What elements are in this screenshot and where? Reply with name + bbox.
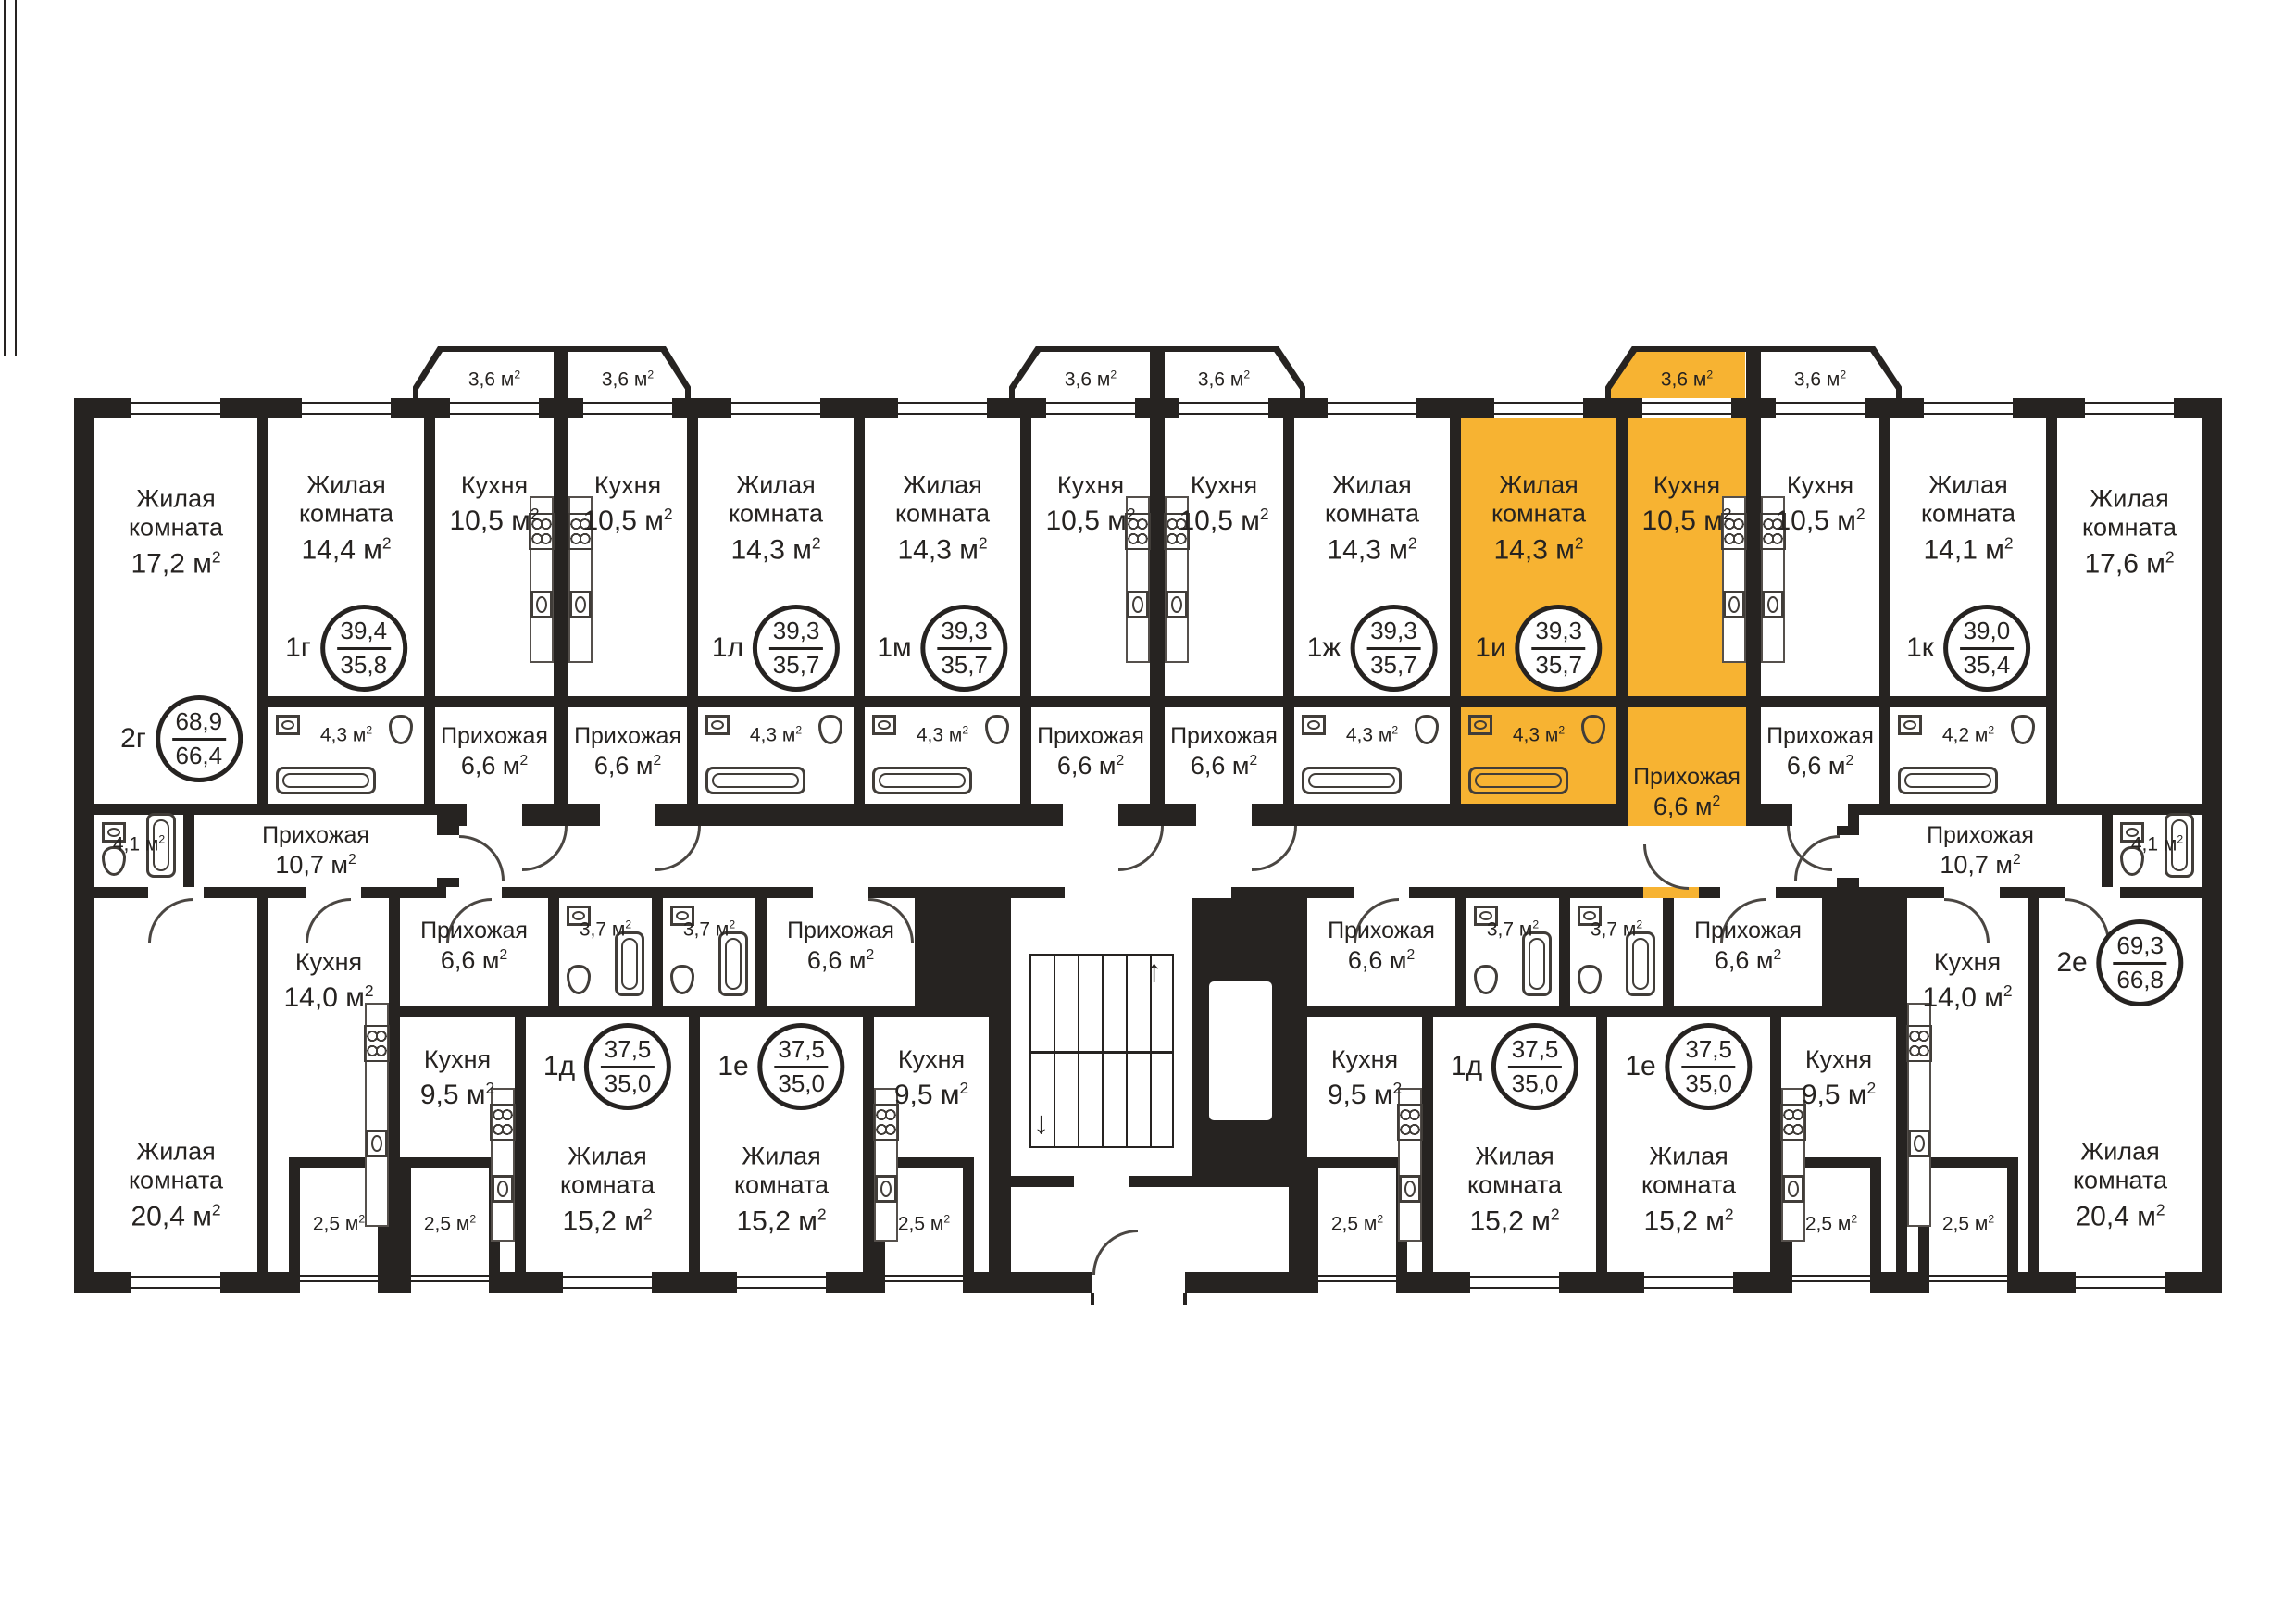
area-fraction-circle: 37,535,0 bbox=[1491, 1023, 1578, 1110]
sink-icon bbox=[102, 822, 126, 843]
total-area: 39,3 bbox=[773, 618, 820, 643]
sink-icon bbox=[276, 715, 300, 735]
r-pr-1g[interactable] bbox=[435, 707, 554, 804]
bathtub-icon bbox=[872, 767, 972, 794]
elevator-car bbox=[1209, 981, 1272, 1120]
area-fraction-circle: 39,335,7 bbox=[753, 605, 840, 692]
sink-icon bbox=[1302, 715, 1326, 735]
living-area: 35,7 bbox=[1535, 653, 1582, 678]
bal-b4[interactable] bbox=[1318, 1168, 1396, 1272]
total-area: 39,4 bbox=[341, 618, 388, 643]
apartment-badge-1г[interactable]: 1г39,435,8 bbox=[285, 605, 407, 692]
bathtub-icon bbox=[276, 767, 376, 794]
total-area: 37,5 bbox=[1512, 1037, 1559, 1062]
window bbox=[0, 89, 20, 178]
fraction-divider bbox=[1682, 1066, 1736, 1068]
door-opening bbox=[1720, 887, 1776, 898]
window bbox=[131, 1272, 220, 1293]
door-opening bbox=[1944, 887, 2000, 898]
window bbox=[1924, 398, 2013, 418]
door-opening bbox=[437, 835, 459, 878]
door-opening bbox=[1837, 835, 1859, 878]
apartment-badge-2г[interactable]: 2г68,966,4 bbox=[120, 695, 243, 782]
apartment-badge-1м[interactable]: 1м39,335,7 bbox=[877, 605, 1007, 692]
stove-icon bbox=[1760, 513, 1786, 550]
stairs-arrow-down: ↓ bbox=[1033, 1107, 1049, 1139]
apartment-badge-1е[interactable]: 1е37,535,0 bbox=[1625, 1023, 1752, 1110]
area-fraction-circle: 37,535,0 bbox=[584, 1023, 671, 1110]
r-pr-2g[interactable] bbox=[194, 815, 437, 887]
living-area: 35,0 bbox=[778, 1071, 825, 1096]
balcony-rail bbox=[1318, 1272, 1396, 1293]
fraction-divider bbox=[1960, 647, 2014, 650]
living-area: 35,0 bbox=[605, 1071, 652, 1096]
bathtub-icon bbox=[705, 767, 805, 794]
balcony-rail bbox=[411, 1272, 489, 1293]
balcony-rail bbox=[300, 1272, 378, 1293]
area-fraction-circle: 39,035,4 bbox=[1943, 605, 2030, 692]
kitchen-sink-icon bbox=[492, 1175, 514, 1203]
window bbox=[1328, 398, 1416, 418]
bathtub-icon bbox=[1468, 767, 1568, 794]
door-opening bbox=[467, 804, 522, 826]
fixtures-layer: ↑↓ bbox=[0, 0, 2296, 356]
living-area: 66,4 bbox=[176, 743, 223, 768]
living-area: 35,7 bbox=[773, 653, 820, 678]
bathtub-icon bbox=[615, 931, 644, 996]
area-fraction-circle: 39,335,7 bbox=[1516, 605, 1603, 692]
apartment-id: 1м bbox=[877, 632, 911, 664]
door-opening bbox=[2065, 887, 2120, 898]
sink-icon bbox=[1578, 906, 1602, 926]
apartment-badge-1ж[interactable]: 1ж39,335,7 bbox=[1307, 605, 1438, 692]
area-fraction-circle: 37,535,0 bbox=[1666, 1023, 1753, 1110]
area-fraction-circle: 39,335,7 bbox=[921, 605, 1008, 692]
apartment-badge-1к[interactable]: 1к39,035,4 bbox=[1906, 605, 2030, 692]
kitchen-sink-icon bbox=[1908, 1130, 1930, 1157]
door-opening bbox=[1074, 1176, 1129, 1187]
apartment-badge-2е[interactable]: 2е69,366,8 bbox=[2056, 919, 2183, 1006]
kitchen-sink-icon bbox=[530, 591, 553, 618]
apartment-id: 1е bbox=[717, 1051, 748, 1082]
bathtub-icon bbox=[1626, 931, 1655, 996]
sink-icon bbox=[2120, 822, 2144, 843]
total-area: 68,9 bbox=[176, 709, 223, 734]
kitchen-sink-icon bbox=[1166, 591, 1188, 618]
door-opening bbox=[446, 887, 502, 898]
total-area: 37,5 bbox=[778, 1037, 825, 1062]
total-area: 37,5 bbox=[605, 1037, 652, 1062]
stairs-arrow-up: ↑ bbox=[1146, 956, 1162, 987]
window bbox=[1494, 398, 1583, 418]
kitchen-sink-icon bbox=[366, 1130, 388, 1157]
door-opening bbox=[813, 887, 868, 898]
door-opening bbox=[306, 887, 361, 898]
window bbox=[1179, 398, 1268, 418]
bal-b2[interactable] bbox=[411, 1168, 489, 1272]
kitchen-sink-icon bbox=[569, 591, 592, 618]
total-area: 39,0 bbox=[1964, 618, 2011, 643]
window bbox=[1046, 398, 1135, 418]
apartment-badge-1л[interactable]: 1л39,335,7 bbox=[712, 605, 840, 692]
door-opening bbox=[1063, 804, 1118, 826]
apartment-id: 1л bbox=[712, 632, 743, 664]
entrance-porch-line bbox=[1091, 1293, 1094, 1305]
bathtub-icon bbox=[1302, 767, 1402, 794]
apartment-id: 1е bbox=[1625, 1051, 1655, 1082]
bathtub-icon bbox=[718, 931, 748, 996]
window bbox=[0, 267, 20, 356]
apartment-badge-1е[interactable]: 1е37,535,0 bbox=[717, 1023, 844, 1110]
r-pr-1zh[interactable] bbox=[1165, 707, 1283, 804]
door-opening bbox=[600, 804, 655, 826]
kitchen-sink-icon bbox=[1723, 591, 1745, 618]
window bbox=[2076, 1272, 2165, 1293]
living-area: 35,0 bbox=[1685, 1071, 1732, 1096]
window bbox=[302, 398, 391, 418]
window bbox=[0, 178, 20, 267]
window bbox=[1470, 1272, 1559, 1293]
r-pr-1k[interactable] bbox=[1761, 707, 1879, 804]
bathtub-icon bbox=[1522, 931, 1552, 996]
area-fraction-circle: 39,335,7 bbox=[1350, 605, 1437, 692]
fraction-divider bbox=[938, 647, 992, 650]
living-area: 35,7 bbox=[941, 653, 988, 678]
door-opening bbox=[1354, 887, 1409, 898]
entrance-porch-line bbox=[1183, 1293, 1187, 1305]
area-fraction-circle: 37,535,0 bbox=[758, 1023, 845, 1110]
total-area: 69,3 bbox=[2116, 933, 2164, 958]
apartment-id: 1ж bbox=[1307, 632, 1341, 664]
apartment-id: 1к bbox=[1906, 632, 1934, 664]
fraction-divider bbox=[1532, 647, 1586, 650]
living-area: 35,0 bbox=[1512, 1071, 1559, 1096]
window bbox=[737, 1272, 826, 1293]
fraction-divider bbox=[775, 1066, 829, 1068]
entrance-vestibule bbox=[1011, 1187, 1289, 1272]
kitchen-sink-icon bbox=[1127, 591, 1149, 618]
sink-icon bbox=[1474, 906, 1498, 926]
bathtub-icon bbox=[1898, 767, 1998, 794]
sink-icon bbox=[670, 906, 694, 926]
kitchen-sink-icon bbox=[875, 1175, 897, 1203]
total-area: 39,3 bbox=[1535, 618, 1582, 643]
door-opening bbox=[148, 887, 204, 898]
stove-icon bbox=[1164, 513, 1190, 550]
living-area: 35,7 bbox=[1370, 653, 1417, 678]
r-pr-2e[interactable] bbox=[1859, 815, 2102, 887]
stove-icon bbox=[1125, 513, 1151, 550]
apartment-id: 2е bbox=[2056, 947, 2087, 979]
area-fraction-circle: 69,366,8 bbox=[2097, 919, 2184, 1006]
fraction-divider bbox=[337, 647, 391, 650]
stove-icon bbox=[1397, 1104, 1423, 1141]
window bbox=[898, 398, 987, 418]
stove-icon bbox=[490, 1104, 516, 1141]
balcony-rail bbox=[1792, 1272, 1870, 1293]
kitchen-sink-icon bbox=[1762, 591, 1784, 618]
sink-icon bbox=[872, 715, 896, 735]
sink-icon bbox=[1898, 715, 1922, 735]
fraction-divider bbox=[1508, 1066, 1562, 1068]
apartment-badge-1и[interactable]: 1и39,335,7 bbox=[1475, 605, 1602, 692]
bathtub-icon bbox=[146, 813, 176, 878]
window bbox=[0, 0, 20, 89]
window bbox=[2085, 398, 2174, 418]
fraction-divider bbox=[172, 738, 226, 741]
door-opening bbox=[1196, 804, 1252, 826]
window bbox=[450, 398, 539, 418]
bal-b6[interactable] bbox=[1929, 1168, 2007, 1272]
window bbox=[1644, 1272, 1733, 1293]
area-fraction-circle: 68,966,4 bbox=[156, 695, 243, 782]
total-area: 39,3 bbox=[941, 618, 988, 643]
stove-icon bbox=[529, 513, 555, 550]
window bbox=[1642, 398, 1731, 418]
total-area: 37,5 bbox=[1685, 1037, 1732, 1062]
total-area: 39,3 bbox=[1370, 618, 1417, 643]
apartment-badge-1д[interactable]: 1д37,535,0 bbox=[1451, 1023, 1578, 1110]
stove-icon bbox=[1780, 1104, 1806, 1141]
apartment-badge-1д[interactable]: 1д37,535,0 bbox=[543, 1023, 671, 1110]
apartment-id: 1д bbox=[543, 1051, 575, 1082]
sink-icon bbox=[705, 715, 730, 735]
window bbox=[131, 398, 220, 418]
fraction-divider bbox=[1366, 647, 1420, 650]
fraction-divider bbox=[769, 647, 823, 650]
apartment-id: 1г bbox=[285, 632, 311, 664]
r-pr-1m[interactable] bbox=[1031, 707, 1150, 804]
r-liv-2g-20-4[interactable] bbox=[94, 898, 257, 1272]
balcony-rail bbox=[1929, 1272, 2007, 1293]
stove-icon bbox=[1721, 513, 1747, 550]
area-fraction-circle: 39,435,8 bbox=[320, 605, 407, 692]
stove-icon bbox=[1906, 1025, 1932, 1062]
stove-icon bbox=[568, 513, 593, 550]
apartment-id: 1д bbox=[1451, 1051, 1482, 1082]
apartment-id: 2г bbox=[120, 723, 146, 755]
bathtub-icon bbox=[2165, 813, 2194, 878]
living-area: 35,4 bbox=[1964, 653, 2011, 678]
r-liv-2e-17-6[interactable] bbox=[2057, 418, 2202, 804]
apartment-id: 1и bbox=[1475, 632, 1505, 664]
window bbox=[731, 398, 820, 418]
door-opening-highlighted bbox=[1643, 887, 1699, 898]
fraction-divider bbox=[601, 1066, 655, 1068]
stove-icon bbox=[873, 1104, 899, 1141]
living-area: 35,8 bbox=[341, 653, 388, 678]
door-opening bbox=[1792, 804, 1848, 826]
door-opening bbox=[1065, 887, 1231, 898]
window bbox=[583, 398, 672, 418]
door-opening bbox=[1092, 1272, 1185, 1293]
r-pr-1l[interactable] bbox=[568, 707, 687, 804]
kitchen-sink-icon bbox=[1399, 1175, 1421, 1203]
sink-icon bbox=[567, 906, 591, 926]
living-area: 66,8 bbox=[2116, 968, 2164, 993]
floor-plan: ↑↓ Жилая комната17,2 м2Жилая комната14,4… bbox=[0, 0, 2296, 1624]
fraction-divider bbox=[2114, 962, 2167, 965]
sink-icon bbox=[1468, 715, 1492, 735]
window bbox=[563, 1272, 652, 1293]
stove-icon bbox=[364, 1025, 390, 1062]
balcony-rail bbox=[885, 1272, 963, 1293]
kitchen-sink-icon bbox=[1782, 1175, 1804, 1203]
window bbox=[1776, 398, 1865, 418]
